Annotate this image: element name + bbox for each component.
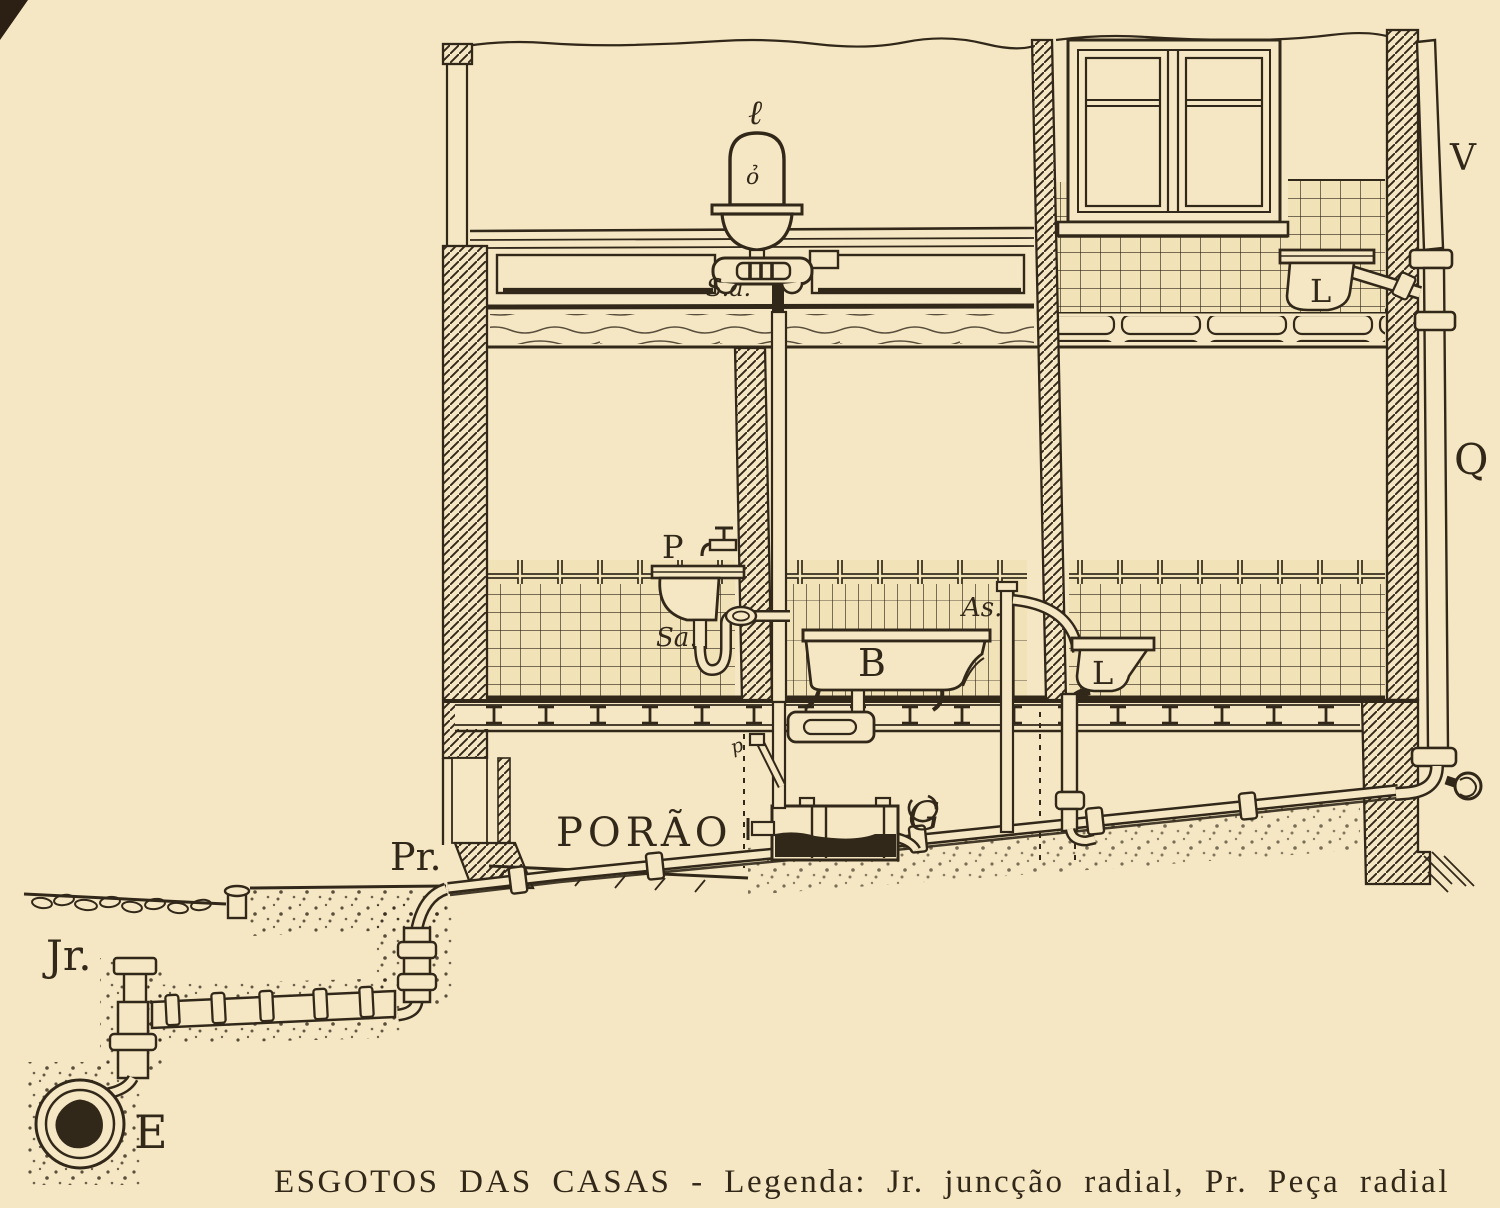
brick-floor-course bbox=[1052, 316, 1385, 342]
upper-floor-band bbox=[443, 311, 1418, 347]
trap-inlet-stub bbox=[752, 822, 774, 835]
ground-surface-right bbox=[250, 886, 446, 888]
right-exterior-wall bbox=[1387, 30, 1418, 700]
bathtub-label: B bbox=[858, 641, 886, 685]
upper-siphon-label: S.a. bbox=[706, 274, 751, 302]
scanned-plate: PORÃO G p bbox=[0, 0, 1500, 1208]
sewage-section-diagram: PORÃO G p bbox=[0, 0, 1500, 1208]
soil-stack-pipe bbox=[1424, 268, 1448, 748]
basement-window-opening bbox=[452, 758, 487, 843]
junction-flare-cap bbox=[114, 958, 156, 974]
floor-joists bbox=[455, 703, 1360, 729]
ascending-pipe-label: As. bbox=[960, 593, 1002, 623]
basin-siphon-label: Sa. bbox=[656, 623, 698, 653]
ascending-pipe bbox=[1001, 588, 1013, 832]
roof-drain-bowl-label: ỏ bbox=[746, 164, 759, 190]
soil-pipe-drop bbox=[772, 312, 786, 702]
roof-branch-stub bbox=[810, 251, 838, 268]
lower-wc-rim bbox=[1072, 638, 1154, 650]
radial-piece-label: Pr. bbox=[390, 835, 442, 879]
ground-floor-structure bbox=[443, 701, 1418, 731]
tap-label: P bbox=[662, 528, 684, 566]
drum-trap bbox=[788, 712, 874, 742]
upper-wc-label: L bbox=[1310, 272, 1331, 310]
left-exterior-wall bbox=[443, 246, 487, 758]
tap-body bbox=[710, 540, 736, 550]
lower-wc-label: L bbox=[1092, 654, 1113, 692]
plate-caption: ESGOTOS DAS CASAS - Legenda: Jr. juncção… bbox=[274, 1164, 1450, 1200]
bathtub-drain-drop bbox=[852, 690, 864, 714]
sewer-outfall bbox=[36, 1080, 124, 1168]
bathtub-body bbox=[806, 641, 985, 690]
bathtub-rim bbox=[803, 630, 990, 641]
roof-drain-label: ℓ bbox=[748, 93, 762, 133]
parapet-cap bbox=[443, 44, 472, 64]
window-sill bbox=[1058, 222, 1288, 236]
soil-stack-label: Q bbox=[1454, 435, 1488, 484]
basement-label: PORÃO bbox=[556, 809, 733, 856]
vent-stack-label: V bbox=[1449, 138, 1477, 179]
sewer-label: E bbox=[134, 1105, 168, 1159]
window bbox=[1058, 40, 1288, 236]
radial-junction-label: Jr. bbox=[42, 931, 92, 980]
middle-partition-wall bbox=[735, 348, 772, 700]
